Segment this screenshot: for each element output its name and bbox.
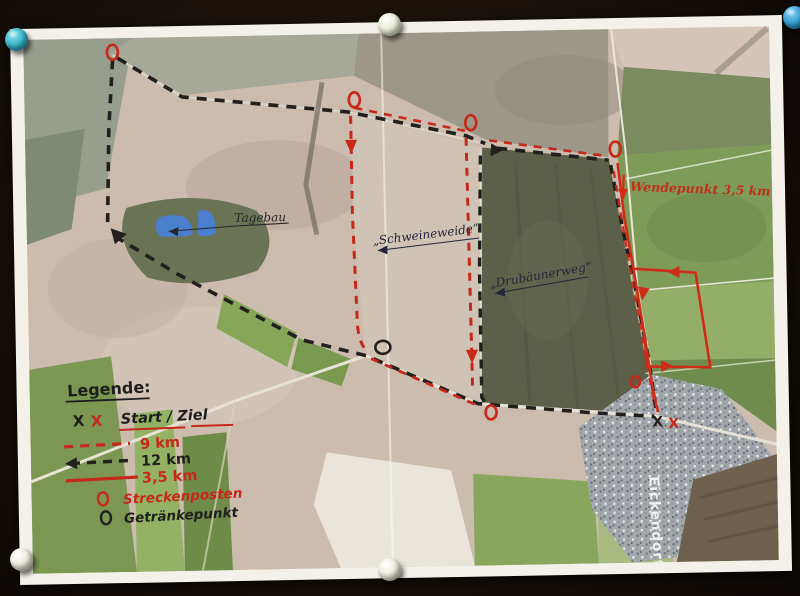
legend-12km-label: 12 km [141, 451, 192, 470]
pushpin-top-center [378, 13, 401, 36]
aerial-map: X X Tagebau „Schweineweide“ „Drubäunerwe… [23, 26, 779, 574]
legend-x-black: X [72, 412, 85, 431]
pushpin-top-left [5, 28, 28, 51]
start-finish-x-red: X [668, 416, 679, 432]
pushpin-bottom-center [378, 558, 401, 581]
legend-x-red: X [90, 412, 103, 431]
start-finish-x-black: X [652, 414, 663, 430]
pushpin-top-right [783, 6, 800, 29]
map-photo-print: X X Tagebau „Schweineweide“ „Drubäunerwe… [10, 15, 792, 585]
pushpin-bottom-left [10, 548, 33, 571]
legend-9km-label: 9 km [140, 435, 181, 453]
legend-3-5km-label: 3,5 km [142, 468, 198, 487]
tagebau-label: Tagebau [234, 210, 286, 225]
